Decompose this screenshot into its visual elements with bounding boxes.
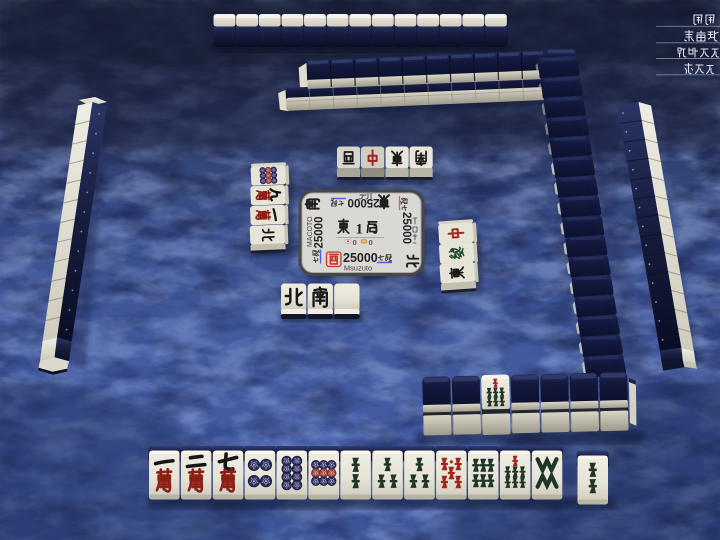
svg-text:1: 1 [356, 222, 364, 238]
svg-text:MACOTO: MACOTO [307, 216, 314, 247]
svg-text:25000: 25000 [400, 212, 412, 244]
svg-text:25000: 25000 [348, 196, 380, 208]
svg-text:25000: 25000 [314, 217, 326, 249]
svg-text:0: 0 [369, 238, 373, 247]
svg-text:Msuzuto: Msuzuto [344, 264, 372, 273]
svg-text:0: 0 [353, 238, 357, 247]
